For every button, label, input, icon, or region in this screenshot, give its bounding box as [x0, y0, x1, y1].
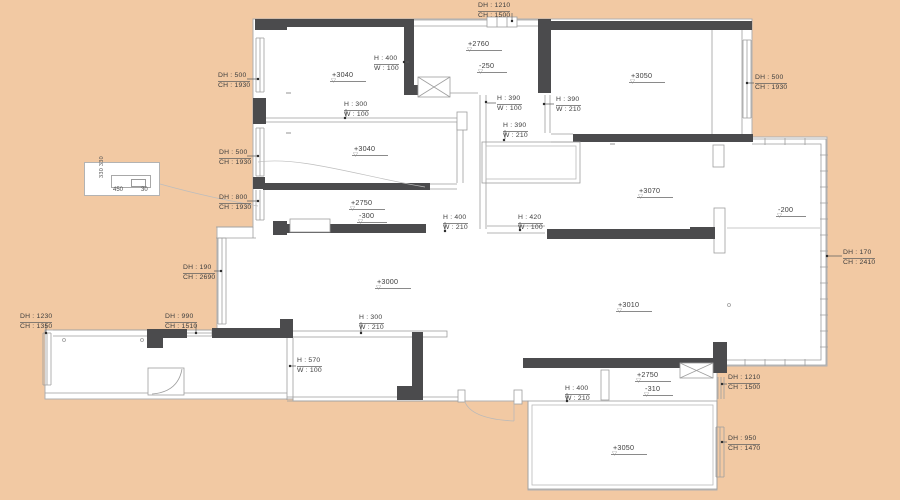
- dim-label-dh800-left: DH : 800CH : 1930: [219, 194, 251, 212]
- elevation-label-2750-a: +2750▽: [349, 199, 385, 210]
- dim-label-dh950-bottom-right: DH : 950CH : 1470: [728, 435, 760, 453]
- detail-chip: [131, 179, 146, 187]
- level-triangle-icon: ▽: [353, 152, 358, 159]
- hw-label-h300-w210: H : 300W : 210: [359, 314, 384, 332]
- dim-label-dh170-right: DH : 170CH : 2410: [843, 249, 875, 267]
- elevation-label-3050-top: +3050▽: [629, 72, 665, 83]
- hw-label-h400-w210-b: H : 400W : 210: [565, 385, 590, 403]
- level-triangle-icon: ▽: [467, 47, 472, 54]
- dim-label-dh500-left-top: DH : 500CH : 1930: [218, 72, 250, 90]
- level-triangle-icon: ▽: [358, 219, 363, 226]
- dim-label-dh990-bottom-left: DH : 990CH : 1510: [165, 313, 197, 331]
- hw-label-h420-w100: H : 420W : 100: [518, 214, 543, 232]
- dim-label-dh500-right: DH : 500CH : 1930: [755, 74, 787, 92]
- hw-label-h400-w210-a: H : 400W : 210: [443, 214, 468, 232]
- elevation-label-3040-b: +3040▽: [352, 145, 388, 156]
- level-triangle-icon: ▽: [638, 194, 643, 201]
- elevation-label-2760: +2760▽: [466, 40, 502, 51]
- elevation-label-3070: +3070▽: [637, 187, 673, 198]
- hw-label-h390-w210-a: H : 390W : 210: [556, 96, 581, 114]
- level-triangle-icon: ▽: [612, 451, 617, 458]
- elevation-label-3000: +3000▽: [375, 278, 411, 289]
- hw-label-h400-w100: H : 400W : 100: [374, 55, 399, 73]
- elevation-label-neg310: -310▽: [643, 385, 673, 396]
- elevation-label-neg250: -250▽: [477, 62, 507, 73]
- elevation-label-neg300: -300▽: [357, 212, 387, 223]
- hw-label-h390-w210-b: H : 390W : 210: [503, 122, 528, 140]
- dim-label-dh1210-top: DH : 1210CH : 1500: [478, 2, 510, 20]
- detail-bottom-dimension: 450: [113, 187, 123, 193]
- level-triangle-icon: ▽: [636, 378, 641, 385]
- detail-bottom-dimension-2: 30: [141, 187, 148, 193]
- elevation-label-3040-a: +3040▽: [330, 71, 366, 82]
- level-triangle-icon: ▽: [350, 206, 355, 213]
- elevation-label-2750-b: +2750▽: [635, 371, 671, 382]
- hw-label-h390-w100: H : 390W : 100: [497, 95, 522, 113]
- elevation-label-neg200: -200▽: [776, 206, 806, 217]
- hw-label-h570-w100: H : 570W : 100: [297, 357, 322, 375]
- level-triangle-icon: ▽: [777, 213, 782, 220]
- dim-label-dh190-left: DH : 190CH : 2690: [183, 264, 215, 282]
- dim-label-dh1210-bottom-right: DH : 1210CH : 1500: [728, 374, 760, 392]
- level-triangle-icon: ▽: [478, 69, 483, 76]
- elevation-label-3010: +3010▽: [616, 301, 652, 312]
- hw-label-h300-w100: H : 300W : 100: [344, 101, 369, 119]
- level-triangle-icon: ▽: [644, 392, 649, 399]
- level-triangle-icon: ▽: [617, 308, 622, 315]
- level-triangle-icon: ▽: [630, 79, 635, 86]
- level-triangle-icon: ▽: [376, 285, 381, 292]
- elevation-label-3050-bottom: +3050▽: [611, 444, 647, 455]
- detail-callout-box: 330 330 450 30: [84, 162, 160, 196]
- detail-side-dimension: 330 330: [99, 156, 105, 178]
- level-triangle-icon: ▽: [331, 78, 336, 85]
- closet-door-icon: [148, 368, 184, 395]
- dim-label-dh1230-bottom-left: DH : 1230CH : 1350: [20, 313, 52, 331]
- floor-plan-canvas: DH : 500CH : 1930 DH : 500CH : 1930 DH :…: [0, 0, 900, 500]
- dim-label-dh500-left-mid: DH : 500CH : 1930: [219, 149, 251, 167]
